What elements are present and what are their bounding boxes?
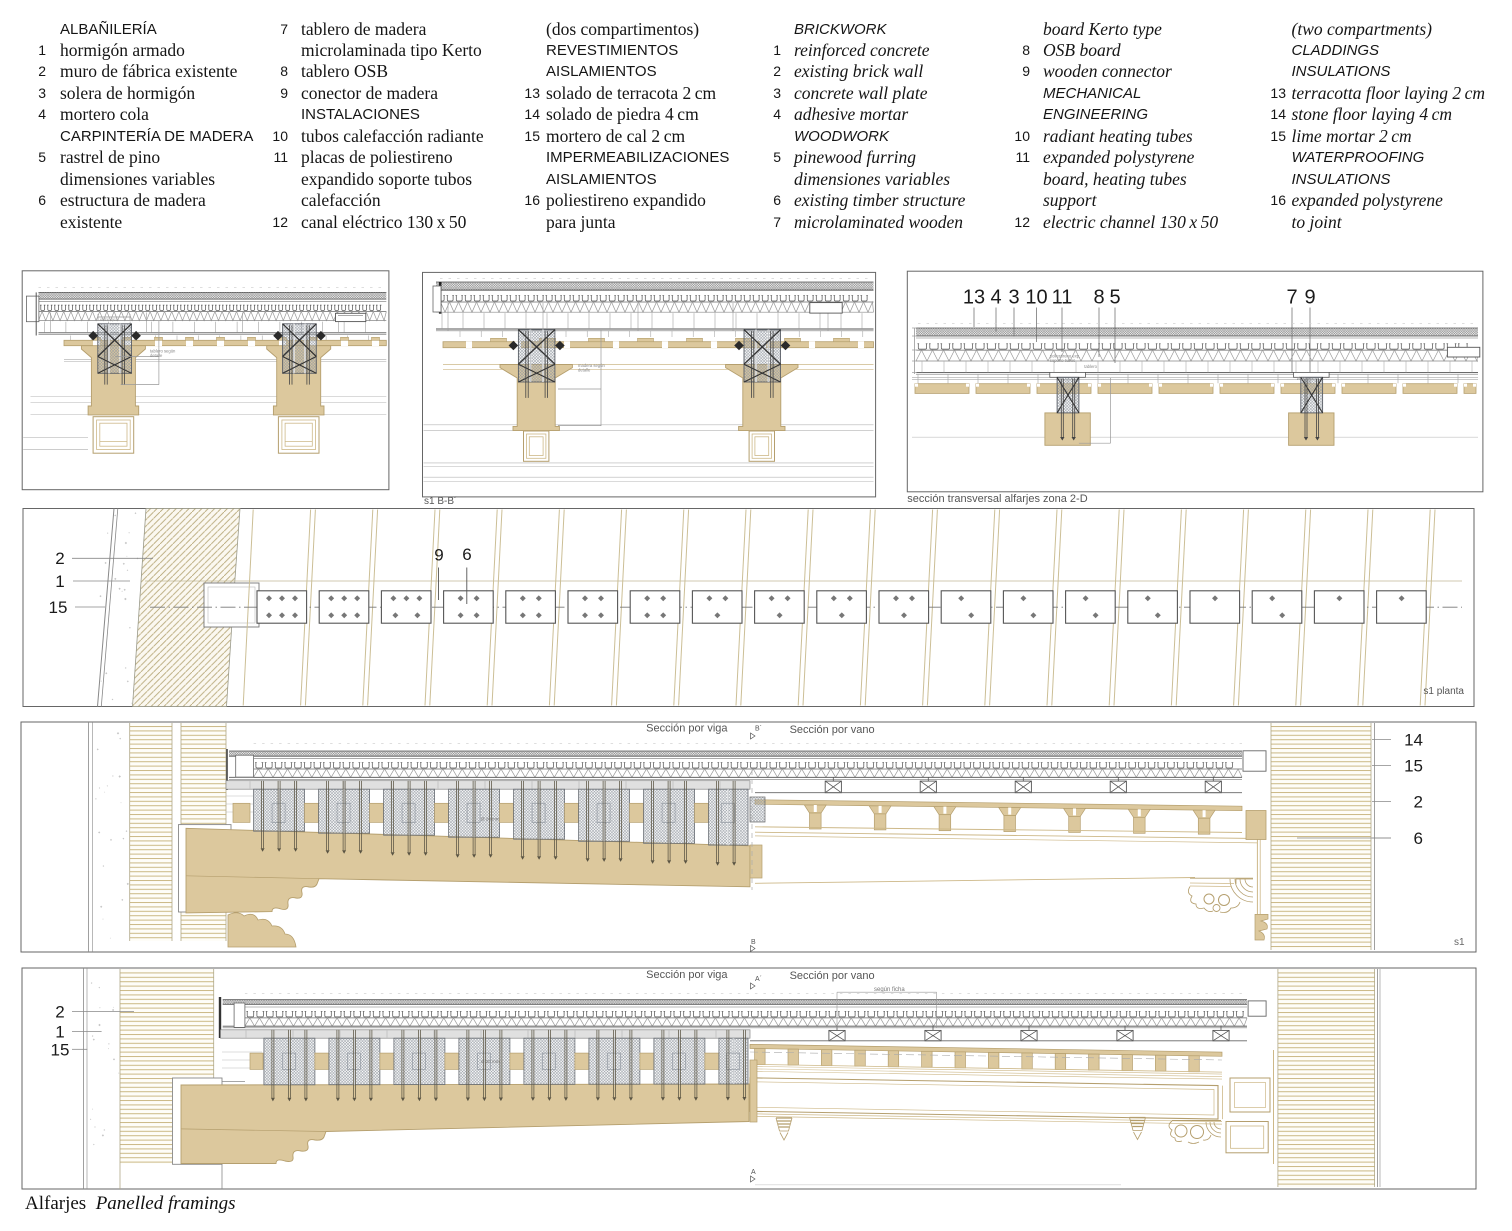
svg-text:Sección por viga: Sección por viga: [646, 723, 728, 735]
svg-text:1: 1: [55, 1023, 64, 1042]
svg-text:6: 6: [1414, 829, 1423, 848]
svg-text:sección transversal alfarjes z: sección transversal alfarjes zona 2-D: [907, 493, 1087, 505]
svg-text:15: 15: [1404, 757, 1423, 776]
svg-text:3: 3: [1008, 287, 1019, 309]
svg-text:tablero: tablero: [1084, 364, 1097, 369]
svg-text:15: 15: [51, 1040, 70, 1059]
svg-text:detalle: detalle: [150, 353, 163, 358]
svg-text:detalle: detalle: [578, 368, 591, 373]
svg-text:15: 15: [49, 598, 68, 617]
svg-text:Ø 20 mm: Ø 20 mm: [481, 817, 500, 822]
svg-text:13: 13: [963, 287, 985, 309]
svg-text:5: 5: [1109, 287, 1120, 309]
svg-text:2: 2: [55, 549, 64, 568]
svg-text:4: 4: [990, 287, 1001, 309]
svg-text:Sección por vano: Sección por vano: [790, 724, 875, 736]
svg-text:2: 2: [1414, 793, 1423, 812]
svg-text:8: 8: [1093, 287, 1104, 309]
svg-text:11: 11: [1052, 287, 1073, 309]
svg-text:A: A: [751, 1169, 756, 1176]
svg-text:2: 2: [55, 1003, 64, 1022]
svg-text:Sección por viga: Sección por viga: [646, 969, 728, 981]
svg-text:10: 10: [1025, 287, 1047, 309]
svg-text:Sección por vano: Sección por vano: [790, 970, 875, 982]
svg-text:s1: s1: [1454, 937, 1465, 948]
svg-text:9: 9: [434, 546, 443, 565]
svg-text:7: 7: [1286, 287, 1297, 309]
svg-text:1: 1: [55, 572, 64, 591]
svg-text:soporte tubos: soporte tubos: [1050, 358, 1075, 363]
svg-text:s1 B-B´: s1 B-B´: [424, 495, 457, 507]
svg-text:A´: A´: [755, 976, 762, 983]
svg-text:Ø 20 mm: Ø 20 mm: [1297, 376, 1315, 381]
svg-text:Ø 20 mm: Ø 20 mm: [481, 1059, 500, 1064]
svg-text:B: B: [751, 939, 756, 946]
svg-text:9: 9: [1304, 287, 1315, 309]
svg-text:6: 6: [462, 545, 471, 564]
svg-text:s1 planta: s1 planta: [1423, 686, 1464, 697]
svg-text:entre ejes: entre ejes: [100, 317, 118, 322]
svg-text:14: 14: [1404, 731, 1423, 750]
svg-text:B´: B´: [755, 726, 762, 733]
